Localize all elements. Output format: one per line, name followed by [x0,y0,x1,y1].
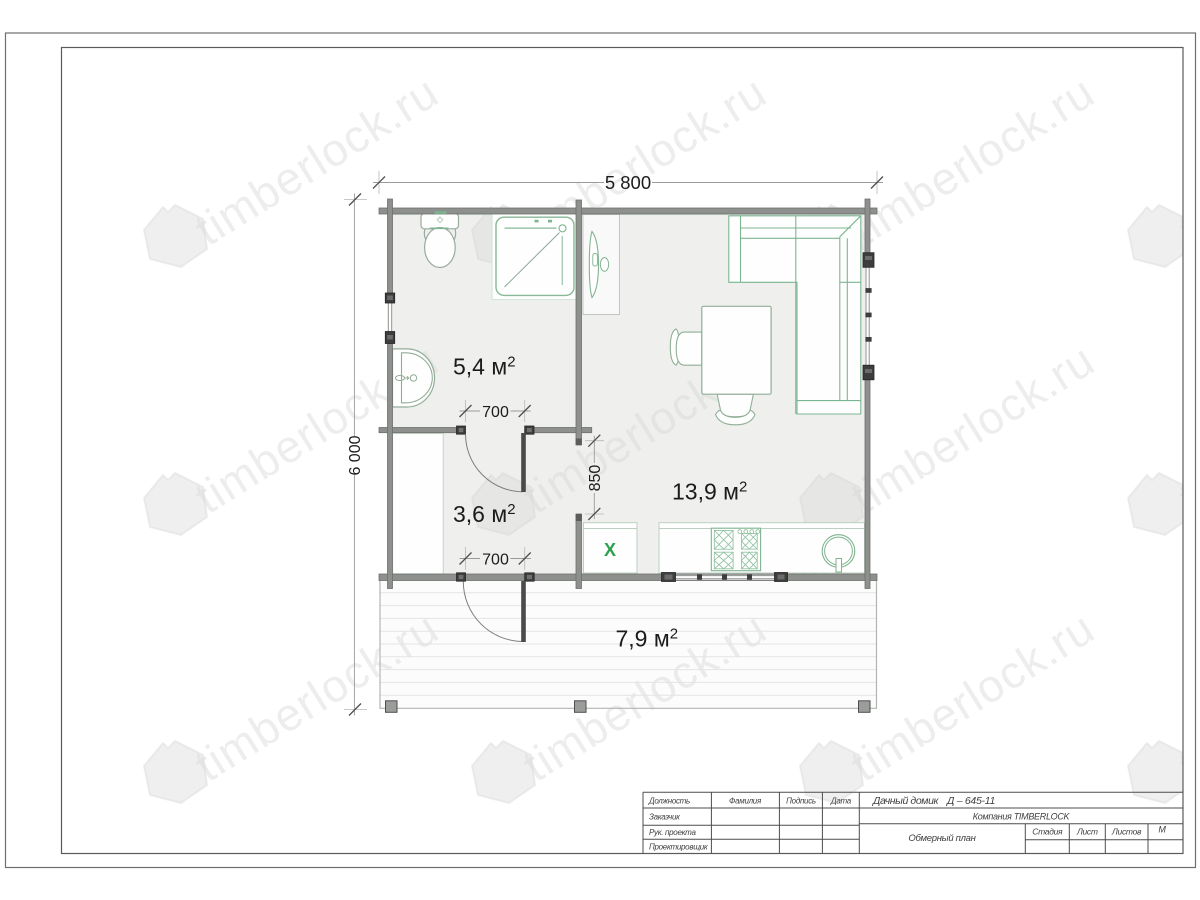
svg-text:Должность: Должность [648,796,690,805]
svg-text:М: М [1158,825,1166,835]
svg-text:Фамилия: Фамилия [729,796,762,805]
svg-text:Лист: Лист [1076,827,1098,837]
svg-text:Стадия: Стадия [1032,827,1063,837]
svg-text:Компания TIMBERLOCK: Компания TIMBERLOCK [973,812,1071,822]
svg-text:Рук. проекта: Рук. проекта [649,828,696,837]
svg-text:Подпись: Подпись [786,796,816,805]
svg-text:Проектировщик: Проектировщик [649,843,709,852]
svg-text:3,6 м2: 3,6 м2 [453,501,516,527]
svg-text:Заказчик: Заказчик [649,813,681,822]
svg-text:700: 700 [482,551,509,568]
svg-text:X: X [604,540,616,560]
svg-text:850: 850 [587,465,604,492]
svg-text:Дата: Дата [830,796,852,805]
svg-text:700: 700 [482,404,509,421]
svg-text:13,9 м2: 13,9 м2 [672,479,747,505]
svg-text:Дачный домик: Дачный домик [872,795,940,807]
svg-text:6 000: 6 000 [347,435,364,475]
svg-text:Д – 645-11: Д – 645-11 [946,795,995,807]
svg-text:5 800: 5 800 [605,172,651,193]
svg-text:7,9 м2: 7,9 м2 [616,626,679,652]
svg-text:Обмерный план: Обмерный план [908,833,976,844]
svg-text:5,4 м2: 5,4 м2 [453,354,516,380]
svg-text:Листов: Листов [1111,827,1142,837]
